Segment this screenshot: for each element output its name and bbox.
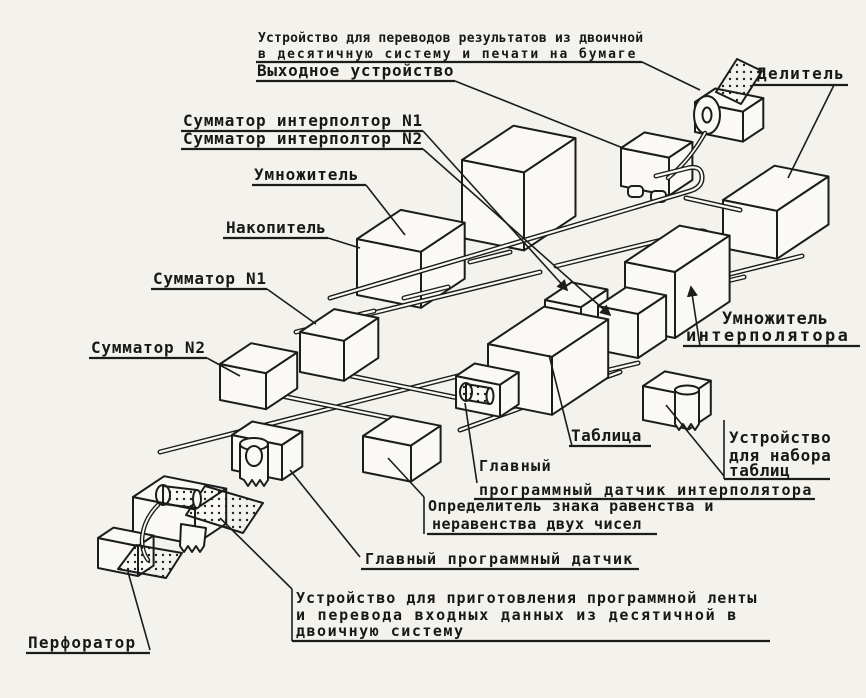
label-adder-n1: Сумматор N1 — [153, 269, 267, 288]
adder-n1-box — [300, 309, 378, 381]
input-device-strip — [180, 524, 206, 552]
input-device-drum-face — [156, 485, 170, 505]
label-main-prog-sensor: Главный программный датчик — [365, 550, 634, 568]
table-setter-roll-top — [675, 386, 699, 395]
label-adder-n2: Сумматор N2 — [91, 338, 206, 357]
label-equality-detector-2: неравенства двух чисел — [432, 515, 642, 533]
label-accumulator: Накопитель — [226, 218, 326, 237]
label-input-converter-3: двоичную систему — [296, 622, 465, 640]
output-device-foot — [628, 186, 643, 197]
input-device-drum-end — [193, 490, 201, 508]
interp-sensor-drum-end — [487, 388, 494, 404]
back-device-boxes — [357, 89, 829, 308]
label-divider: Делитель — [757, 64, 845, 83]
label-table: Таблица — [571, 426, 642, 445]
label-output-converter-1: Устройство для переводов результатов из … — [258, 31, 643, 46]
label-input-converter-1: Устройство для приготовления программной… — [296, 589, 757, 607]
machine-schematic: Устройство для переводов результатов из … — [0, 0, 866, 698]
label-output-device: Выходное устройство — [257, 61, 454, 80]
label-equality-detector-1: Определитель знака равенства и — [428, 497, 714, 515]
label-multiplier: Умножитель — [254, 165, 359, 184]
label-output-converter-2: в десятичную систему и печати на бумаге — [258, 47, 637, 62]
label-main-prog-sensor-interp-1: Главный — [479, 457, 552, 475]
table-setter-paper — [675, 390, 699, 430]
label-perforator: Перфоратор — [28, 633, 136, 652]
label-adder-interp-n1: Сумматор интерполтор N1 — [183, 111, 423, 130]
label-interp-multiplier-2: интерполятора — [686, 326, 850, 346]
printer-tape-reel-hub — [703, 108, 712, 123]
scanned-diagram-page: Устройство для переводов результатов из … — [0, 0, 866, 698]
prog-sensor-roll-hub — [246, 446, 262, 466]
interp-sensor-drum-face — [460, 383, 472, 401]
label-table-setter-3: таблиц — [729, 461, 790, 480]
label-adder-interp-n2: Сумматор интерполтор N2 — [183, 129, 423, 148]
label-table-setter-1: Устройство — [729, 428, 831, 447]
